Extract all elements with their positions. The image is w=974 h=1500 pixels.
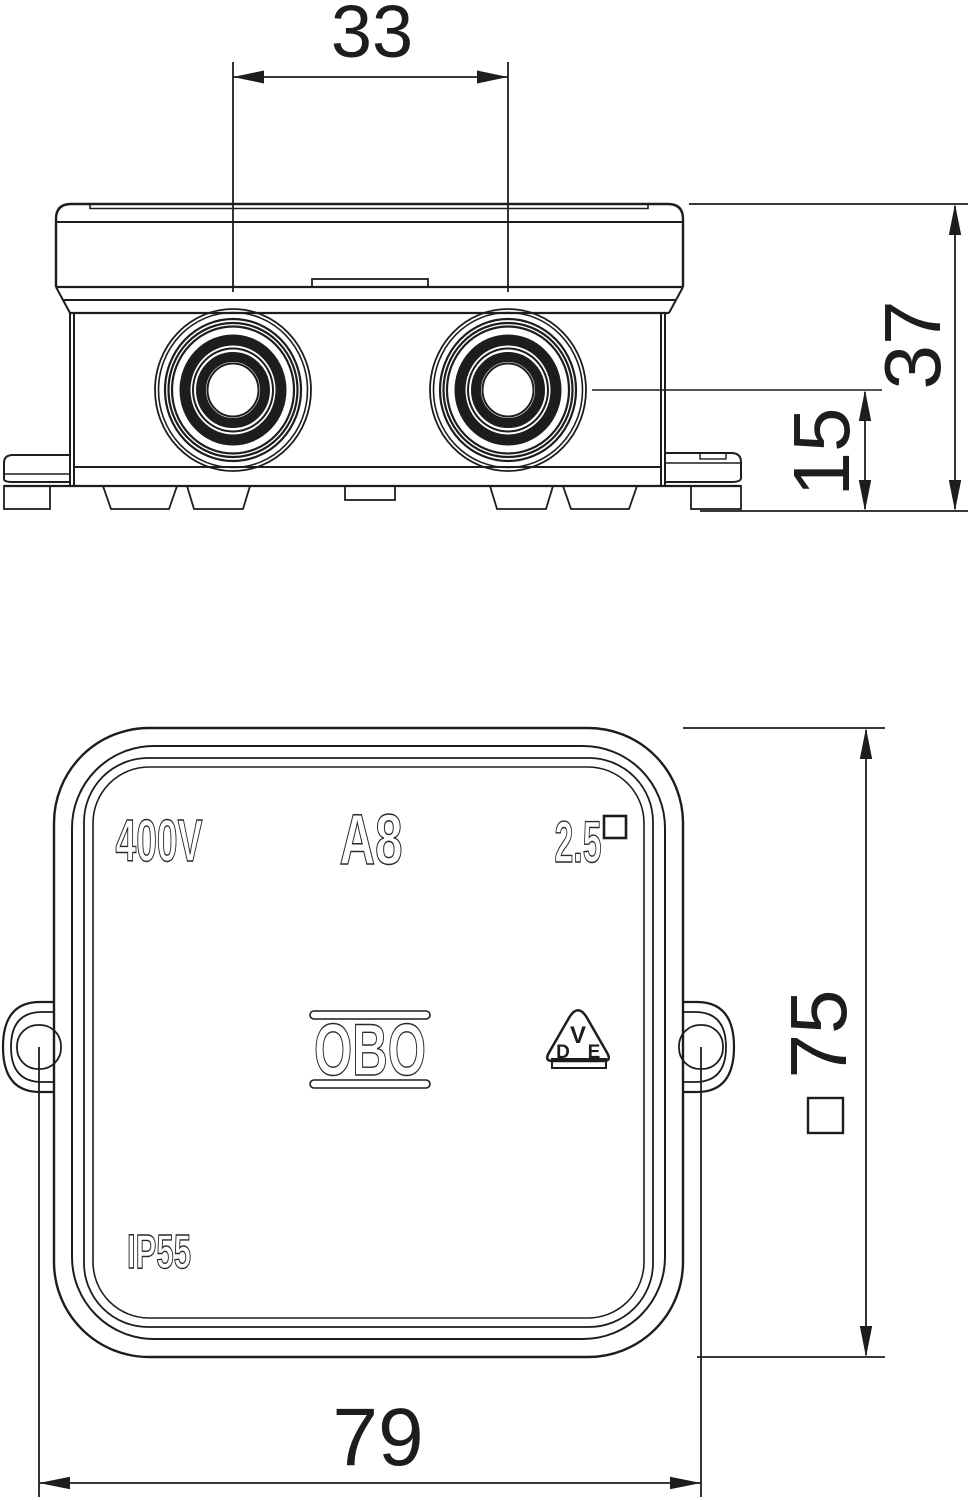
vde-letter-e: E: [588, 1042, 601, 1063]
mounting-ear-side-left: [4, 455, 70, 482]
square-dimension-symbol: [808, 1098, 843, 1133]
mounting-ear-side-right: [665, 453, 741, 482]
vde-letter-v: V: [570, 1022, 586, 1049]
obo-logo: OBO: [310, 1010, 430, 1091]
dim-33-label: 33: [331, 0, 413, 73]
voltage-label: 400V: [116, 808, 203, 874]
base-feet: [4, 486, 741, 509]
arrowhead-left: [233, 71, 264, 84]
drawing-canvas: 33 37 15 400V A: [0, 0, 974, 1500]
technical-drawing: 33 37 15 400V A: [0, 0, 974, 1500]
model-label: A8: [340, 801, 403, 880]
cable-entry-right: [430, 309, 586, 471]
conductor-square-symbol: [604, 816, 626, 838]
side-view: [4, 204, 741, 509]
dimension-body-square: 75: [683, 728, 885, 1357]
arrowhead-right: [477, 71, 508, 84]
box-body-outline: [4, 300, 741, 486]
dimension-entry-spacing: 33: [233, 0, 508, 292]
lid-outline: [56, 204, 683, 300]
mounting-ear-front-left: [3, 1002, 61, 1092]
dim-37-label: 37: [868, 301, 957, 390]
vde-letter-d: D: [556, 1042, 570, 1063]
dim-79-label: 79: [332, 1392, 423, 1483]
dim-15-label: 15: [777, 408, 866, 497]
dim-75-label: 75: [774, 990, 863, 1079]
vde-logo: V D E: [547, 1010, 609, 1068]
cable-entry-left: [155, 309, 311, 471]
obo-logo-text: OBO: [314, 1010, 426, 1091]
front-view: 400V A8 2.5 IP55 OBO V D E: [3, 728, 734, 1357]
mounting-ear-front-right: [679, 1002, 734, 1092]
lid-latch-tab: [312, 279, 428, 287]
wire-gauge-label: 2.5: [555, 810, 602, 875]
ip-rating-label: IP55: [127, 1226, 191, 1279]
